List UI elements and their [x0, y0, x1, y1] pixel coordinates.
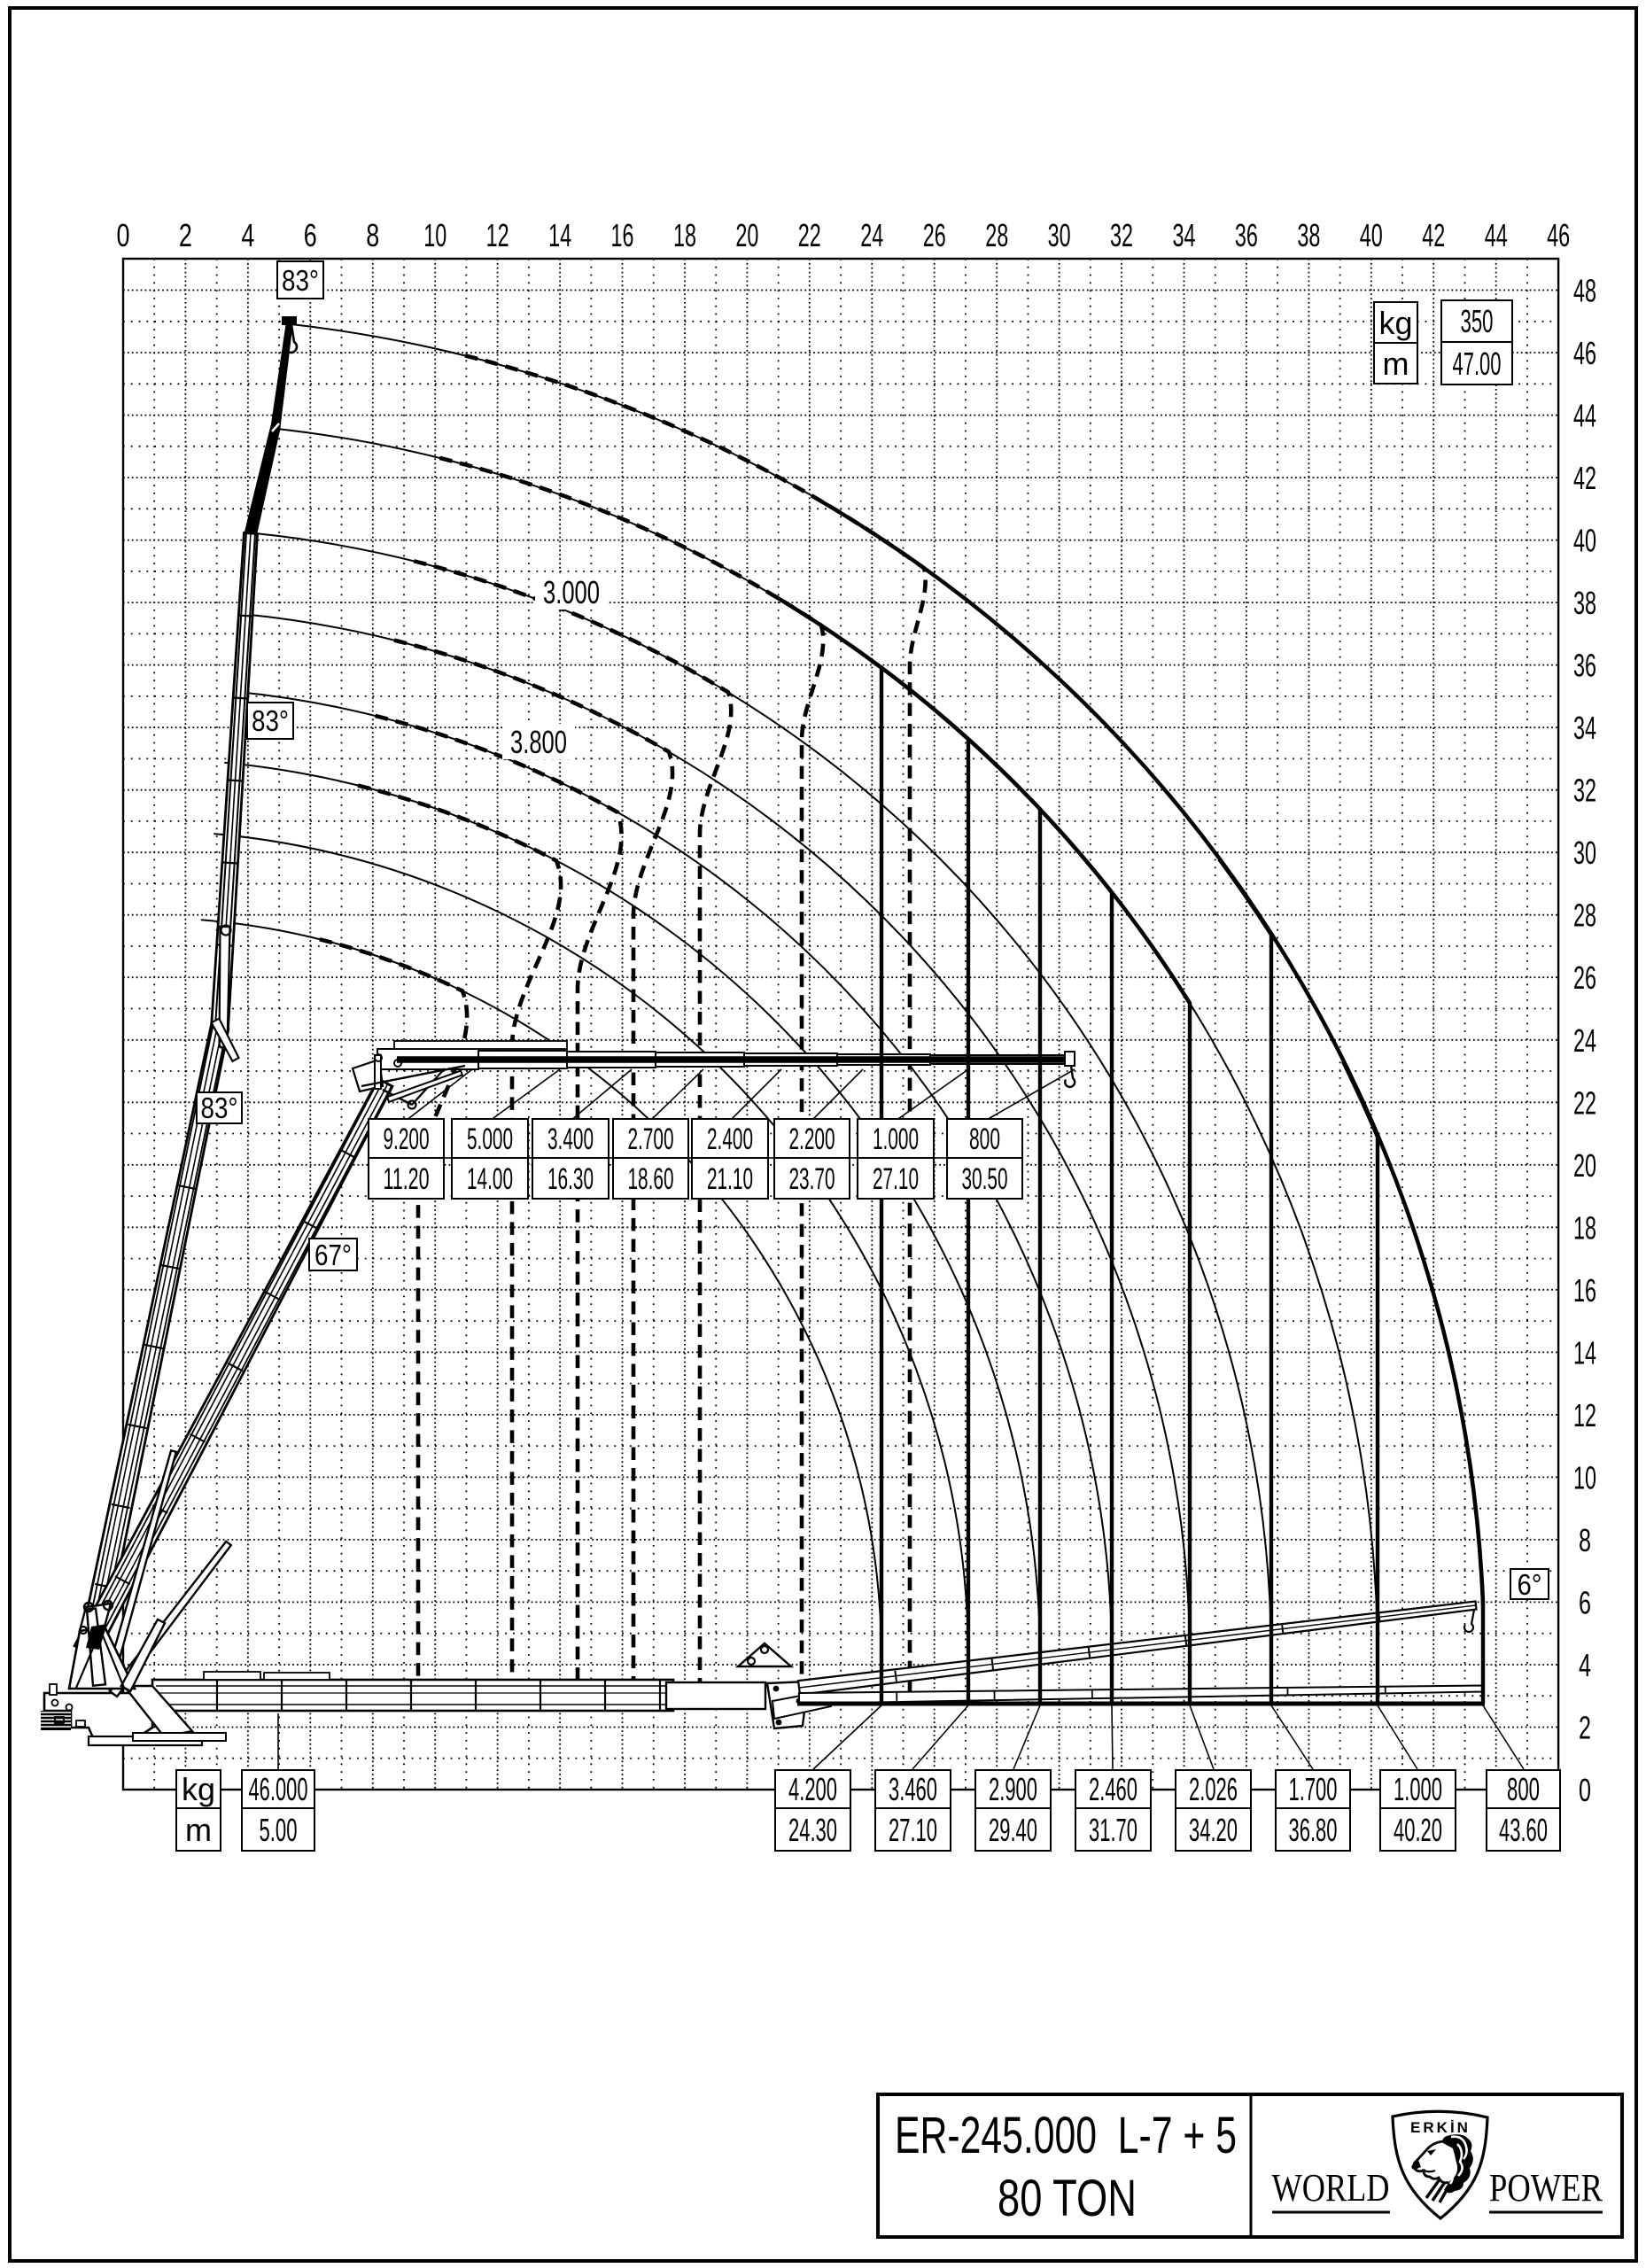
- svg-text:16: 16: [611, 217, 634, 253]
- svg-text:34.20: 34.20: [1189, 1812, 1238, 1848]
- svg-text:2.200: 2.200: [789, 1122, 835, 1156]
- svg-text:40: 40: [1573, 523, 1596, 559]
- svg-text:44: 44: [1573, 398, 1596, 434]
- svg-text:38: 38: [1297, 217, 1320, 253]
- svg-text:6°: 6°: [1518, 1568, 1542, 1601]
- svg-text:30.50: 30.50: [962, 1162, 1008, 1196]
- svg-text:67°: 67°: [314, 1239, 352, 1271]
- svg-text:8: 8: [366, 217, 379, 253]
- svg-text:42: 42: [1422, 217, 1445, 253]
- svg-text:22: 22: [1573, 1084, 1596, 1121]
- svg-text:3.800: 3.800: [510, 724, 567, 760]
- svg-text:38: 38: [1573, 585, 1596, 621]
- svg-text:30: 30: [1048, 217, 1071, 253]
- svg-text:16.30: 16.30: [547, 1162, 594, 1196]
- svg-text:10: 10: [1573, 1459, 1596, 1495]
- svg-text:24: 24: [860, 217, 883, 253]
- svg-text:28: 28: [985, 217, 1008, 253]
- svg-text:40.20: 40.20: [1394, 1812, 1442, 1848]
- svg-text:350: 350: [1461, 303, 1494, 339]
- svg-text:m: m: [185, 1812, 212, 1848]
- svg-text:20: 20: [1573, 1147, 1596, 1184]
- svg-text:43.60: 43.60: [1499, 1812, 1548, 1848]
- svg-text:18: 18: [1573, 1209, 1596, 1246]
- svg-text:32: 32: [1573, 773, 1596, 809]
- svg-text:46: 46: [1573, 335, 1596, 371]
- svg-text:18: 18: [673, 217, 696, 253]
- svg-text:m: m: [1383, 346, 1409, 382]
- svg-text:83°: 83°: [252, 704, 289, 737]
- svg-text:2: 2: [179, 217, 192, 253]
- svg-text:16: 16: [1573, 1272, 1596, 1309]
- svg-text:27.10: 27.10: [873, 1162, 919, 1196]
- svg-text:4.200: 4.200: [788, 1771, 837, 1807]
- svg-text:18.60: 18.60: [628, 1162, 674, 1196]
- svg-text:5.000: 5.000: [467, 1122, 513, 1156]
- svg-text:34: 34: [1573, 710, 1596, 746]
- svg-text:2.026: 2.026: [1189, 1771, 1238, 1807]
- svg-text:11.20: 11.20: [384, 1162, 430, 1196]
- svg-text:ERKİN: ERKİN: [1410, 2119, 1471, 2136]
- svg-text:3.000: 3.000: [543, 574, 600, 610]
- svg-text:0: 0: [1579, 1772, 1591, 1808]
- svg-text:14: 14: [548, 217, 571, 253]
- svg-text:1.000: 1.000: [1394, 1771, 1442, 1807]
- svg-text:21.10: 21.10: [707, 1162, 753, 1196]
- svg-text:2: 2: [1579, 1710, 1591, 1746]
- svg-text:24: 24: [1573, 1022, 1596, 1059]
- svg-text:32: 32: [1110, 217, 1133, 253]
- svg-text:kg: kg: [1378, 305, 1412, 341]
- svg-text:23.70: 23.70: [789, 1162, 835, 1196]
- svg-text:10: 10: [423, 217, 446, 253]
- svg-text:2.400: 2.400: [707, 1122, 753, 1156]
- svg-text:3.400: 3.400: [547, 1122, 594, 1156]
- svg-text:44: 44: [1485, 217, 1508, 253]
- svg-text:1.700: 1.700: [1289, 1771, 1338, 1807]
- svg-text:27.10: 27.10: [889, 1812, 937, 1848]
- svg-text:36: 36: [1235, 217, 1258, 253]
- svg-text:2.900: 2.900: [989, 1771, 1037, 1807]
- svg-text:83°: 83°: [282, 264, 319, 297]
- svg-text:2.700: 2.700: [628, 1122, 674, 1156]
- svg-text:9.200: 9.200: [384, 1122, 430, 1156]
- svg-text:6: 6: [304, 217, 317, 253]
- svg-text:20: 20: [735, 217, 758, 253]
- svg-text:14: 14: [1573, 1334, 1596, 1371]
- svg-text:26: 26: [923, 217, 946, 253]
- svg-text:4: 4: [241, 217, 254, 253]
- svg-text:34: 34: [1173, 217, 1196, 253]
- svg-text:kg: kg: [182, 1771, 215, 1807]
- svg-text:WORLD: WORLD: [1272, 2166, 1390, 2210]
- svg-text:4: 4: [1579, 1647, 1591, 1683]
- svg-text:800: 800: [969, 1122, 1000, 1156]
- svg-text:6: 6: [1579, 1584, 1591, 1620]
- svg-text:24.30: 24.30: [788, 1812, 837, 1848]
- svg-text:3.460: 3.460: [889, 1771, 937, 1807]
- svg-text:31.70: 31.70: [1089, 1812, 1137, 1848]
- svg-text:29.40: 29.40: [989, 1812, 1037, 1848]
- svg-text:12: 12: [1573, 1397, 1596, 1433]
- svg-text:42: 42: [1573, 460, 1596, 496]
- svg-text:80 TON: 80 TON: [998, 2170, 1137, 2227]
- svg-text:36: 36: [1573, 648, 1596, 684]
- svg-text:5.00: 5.00: [260, 1812, 298, 1848]
- svg-text:22: 22: [798, 217, 821, 253]
- svg-text:83°: 83°: [201, 1091, 238, 1124]
- svg-text:1.000: 1.000: [873, 1122, 919, 1156]
- svg-text:2.460: 2.460: [1089, 1771, 1137, 1807]
- svg-text:800: 800: [1507, 1771, 1540, 1807]
- svg-text:28: 28: [1573, 897, 1596, 934]
- svg-text:26: 26: [1573, 959, 1596, 996]
- svg-text:14.00: 14.00: [467, 1162, 513, 1196]
- svg-text:46.000: 46.000: [249, 1771, 308, 1807]
- svg-text:30: 30: [1573, 835, 1596, 871]
- svg-text:POWER: POWER: [1489, 2166, 1603, 2210]
- svg-text:36.80: 36.80: [1289, 1812, 1338, 1848]
- svg-text:0: 0: [117, 217, 130, 253]
- svg-text:12: 12: [486, 217, 509, 253]
- svg-text:ER-245.000 L-7 + 5: ER-245.000 L-7 + 5: [895, 2107, 1237, 2164]
- svg-text:48: 48: [1573, 273, 1596, 309]
- svg-text:47.00: 47.00: [1453, 346, 1502, 382]
- svg-text:8: 8: [1579, 1522, 1591, 1558]
- svg-text:46: 46: [1547, 217, 1570, 253]
- svg-text:40: 40: [1360, 217, 1383, 253]
